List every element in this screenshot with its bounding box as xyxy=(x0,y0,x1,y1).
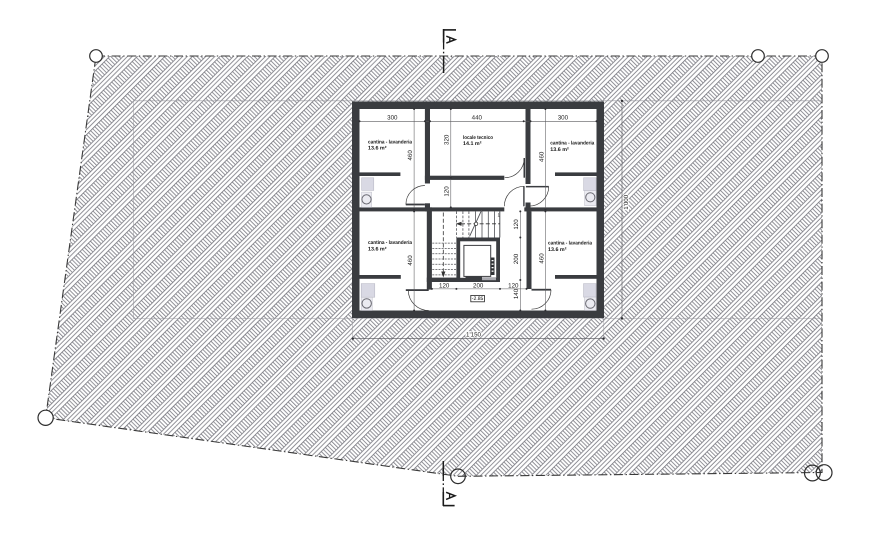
svg-text:cantina - lavanderia: cantina - lavanderia xyxy=(550,141,594,147)
svg-text:460: 460 xyxy=(538,253,545,264)
svg-text:200: 200 xyxy=(513,253,520,264)
svg-text:1: 1 xyxy=(498,213,501,218)
svg-text:13.6 m²: 13.6 m² xyxy=(548,247,567,253)
svg-text:14.1 m²: 14.1 m² xyxy=(463,141,482,147)
svg-text:460: 460 xyxy=(407,150,414,161)
svg-text:cantina - lavanderia: cantina - lavanderia xyxy=(368,139,412,145)
svg-text:1'000: 1'000 xyxy=(623,194,630,210)
svg-text:120: 120 xyxy=(513,219,520,230)
svg-text:1'150: 1'150 xyxy=(466,331,482,338)
svg-text:200: 200 xyxy=(473,282,484,289)
svg-text:13.6 m²: 13.6 m² xyxy=(550,147,569,153)
svg-text:440: 440 xyxy=(472,115,483,122)
svg-text:140: 140 xyxy=(513,288,520,299)
svg-text:120: 120 xyxy=(508,282,519,289)
svg-text:cantina - lavanderia: cantina - lavanderia xyxy=(548,241,592,247)
svg-text:460: 460 xyxy=(538,151,545,162)
svg-text:-2.85: -2.85 xyxy=(472,296,484,302)
svg-text:120: 120 xyxy=(439,282,450,289)
svg-text:13.6 m²: 13.6 m² xyxy=(368,146,387,152)
svg-text:460: 460 xyxy=(407,255,414,266)
svg-text:300: 300 xyxy=(558,115,569,122)
svg-text:300: 300 xyxy=(387,115,398,122)
svg-text:13.6 m²: 13.6 m² xyxy=(368,246,387,252)
svg-text:320: 320 xyxy=(443,134,450,145)
svg-text:cantina - lavanderia: cantina - lavanderia xyxy=(368,240,412,246)
svg-text:120: 120 xyxy=(443,186,450,197)
